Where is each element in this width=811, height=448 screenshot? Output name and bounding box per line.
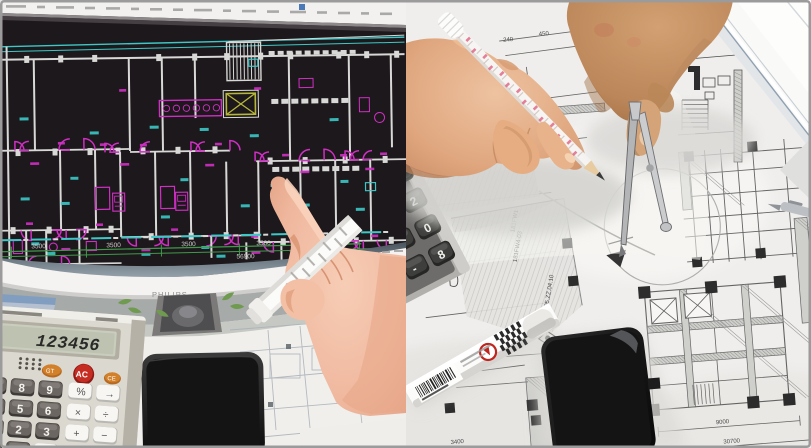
svg-text:3400: 3400: [450, 439, 464, 446]
svg-text:3500: 3500: [181, 241, 196, 248]
svg-text:+: +: [73, 428, 80, 440]
svg-text:×: ×: [74, 407, 81, 419]
svg-text:9: 9: [46, 385, 53, 397]
svg-text:3500: 3500: [31, 243, 46, 250]
svg-text:−: −: [101, 430, 108, 442]
svg-text:÷: ÷: [102, 409, 109, 421]
svg-text:%: %: [76, 386, 86, 399]
svg-text:→: →: [104, 388, 115, 401]
svg-text:6: 6: [44, 406, 51, 418]
svg-text:CE: CE: [107, 376, 116, 383]
svg-text:9000: 9000: [716, 419, 730, 426]
svg-text:GT: GT: [46, 369, 55, 376]
svg-text:450: 450: [539, 31, 550, 38]
svg-text:3500: 3500: [106, 242, 121, 249]
svg-text:AC: AC: [75, 369, 88, 380]
svg-text:3500: 3500: [256, 240, 271, 247]
svg-text:56900: 56900: [236, 253, 255, 260]
svg-text:3: 3: [43, 427, 50, 439]
svg-text:2: 2: [15, 424, 22, 436]
svg-text:240: 240: [503, 37, 514, 44]
